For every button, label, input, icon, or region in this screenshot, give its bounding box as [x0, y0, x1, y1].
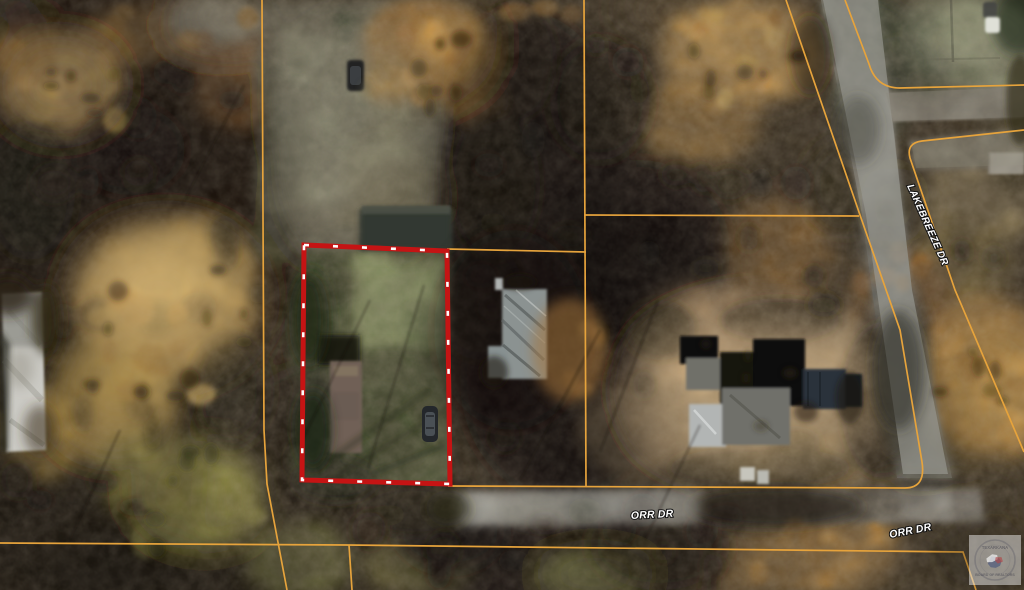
svg-text:BOARD OF REALTORS: BOARD OF REALTORS: [975, 573, 1015, 577]
svg-text:TEXARKANA: TEXARKANA: [982, 545, 1008, 550]
svg-text:ORR DR: ORR DR: [631, 508, 674, 522]
